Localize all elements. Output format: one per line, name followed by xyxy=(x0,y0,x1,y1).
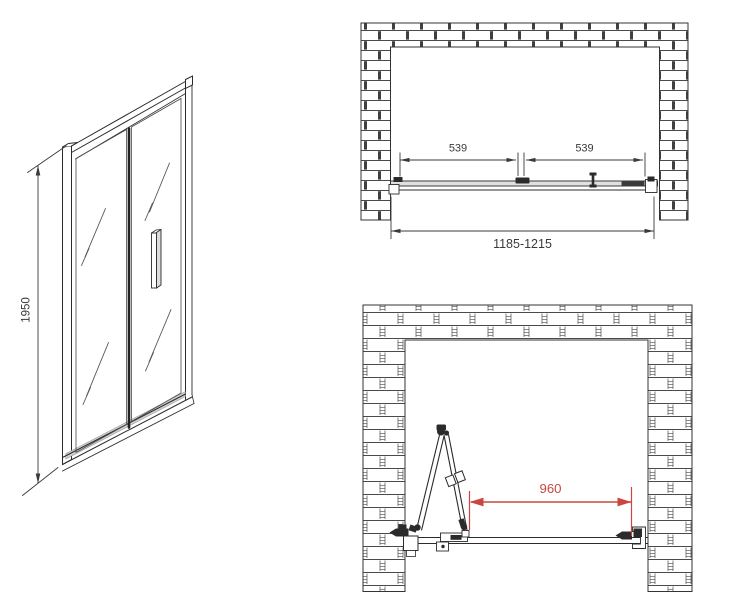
plan-view-open-drawing: 960 xyxy=(355,295,695,600)
clear-opening-dimension-label: 960 xyxy=(539,481,561,496)
front-view-drawing: 1950 xyxy=(15,75,220,500)
top-rail xyxy=(72,76,193,159)
overall-width-dimension-label: 1185-1215 xyxy=(493,237,552,251)
handle-knob xyxy=(590,173,597,188)
left-wall-bracket xyxy=(404,536,419,551)
height-dimension-label: 1950 xyxy=(21,297,33,323)
door-track-open xyxy=(390,525,649,557)
fold-hinge xyxy=(437,428,445,436)
wall-profile xyxy=(63,143,78,465)
folded-door-panels xyxy=(409,425,468,533)
center-hinge xyxy=(516,178,530,184)
door-handle-top-view xyxy=(445,471,465,487)
left-panel-dimension-label: 539 xyxy=(449,143,467,155)
left-wall-bracket xyxy=(389,185,399,195)
right-frame xyxy=(186,85,193,400)
right-panel-dimension-label: 539 xyxy=(575,143,593,155)
panel-dimensions: 539 539 xyxy=(400,143,645,177)
door-track-closed xyxy=(389,173,658,195)
height-dimension: 1950 xyxy=(21,146,67,496)
shower-door-installation-diagram: 1950 xyxy=(0,0,732,600)
clear-opening-dimension: 960 xyxy=(470,481,632,536)
door-handle xyxy=(152,230,162,289)
overall-width-dimension: 1185-1215 xyxy=(391,197,654,252)
plan-view-closed-drawing: 539 539 1185-1215 xyxy=(355,15,695,265)
